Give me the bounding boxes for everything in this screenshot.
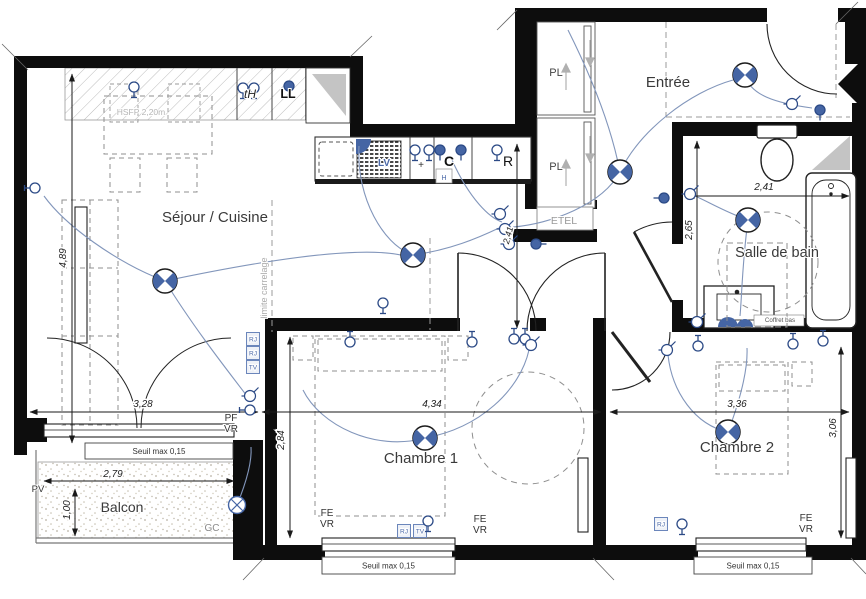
annotation-vr: VR xyxy=(320,519,334,530)
socket-square-text: RJ xyxy=(249,350,257,357)
annotation-lv: LV xyxy=(378,158,390,169)
annotation-fe: FE xyxy=(800,513,813,524)
dimension-label-5: 3,06 xyxy=(828,418,839,438)
annotation-ll: LL xyxy=(280,87,296,101)
outlet-icon xyxy=(345,332,355,348)
nightstand xyxy=(448,336,468,360)
outlet-icon xyxy=(378,298,388,314)
threshold-text: Seuil max 0,15 xyxy=(727,562,780,571)
floor-plan: Seuil max 0,15Seuil max 0,15Seuil max 0,… xyxy=(0,0,866,599)
ceiling-light-icon xyxy=(608,160,632,184)
nightstand xyxy=(293,336,313,360)
annotation-pl: PL xyxy=(549,67,562,79)
annotation-fe: FE xyxy=(321,508,334,519)
outlet-icon xyxy=(693,336,703,352)
duct-bedroom1 xyxy=(578,458,588,532)
switch-icon xyxy=(242,388,259,402)
dimension-label-3: 3,36 xyxy=(727,399,747,410)
room-label-salle-de-bain: Salle de bain xyxy=(735,245,819,261)
ceiling-light-icon xyxy=(733,63,757,87)
outlet-icon xyxy=(240,405,256,415)
socket-square-text: TV xyxy=(416,528,425,535)
bedroom2-door-arc xyxy=(612,332,670,390)
turning-circle-bedroom1 xyxy=(472,372,584,484)
socket-square-text: RJ xyxy=(249,336,257,343)
room-label-entree: Entrée xyxy=(646,74,690,91)
floor-plan-svg: Seuil max 0,15Seuil max 0,15Seuil max 0,… xyxy=(0,0,866,599)
ceiling-light-icon xyxy=(401,243,425,267)
french-door-arc xyxy=(47,338,137,428)
annotation-etel: ETEL xyxy=(551,215,577,227)
wall-socket-square-rj: RJ xyxy=(398,525,411,538)
wall-socket-square-rj: RJ xyxy=(247,347,260,360)
left-wall-window xyxy=(75,207,87,343)
annotation-hsfp-2-20m: HSFP 2,20m xyxy=(117,107,166,117)
bedroom1-door-arc xyxy=(458,253,536,331)
bath-door-arc xyxy=(634,222,672,232)
wall-socket-square-rj: RJ xyxy=(655,518,668,531)
switch-icon xyxy=(659,342,676,356)
dimension-label-8: 2,41 xyxy=(753,182,773,193)
ceiling-light-icon xyxy=(736,208,760,232)
outlet-filled-icon xyxy=(815,105,825,121)
ceiling-light-icon xyxy=(153,269,177,293)
threshold-text: Seuil max 0,15 xyxy=(362,562,415,571)
threshold-box: Seuil max 0,15 xyxy=(694,557,812,574)
ceiling-light-icon xyxy=(413,426,437,450)
threshold-box: Seuil max 0,15 xyxy=(85,443,233,459)
annotation-r: R xyxy=(503,153,513,169)
annotation--: + xyxy=(418,160,424,171)
threshold-text: Seuil max 0,15 xyxy=(133,447,186,456)
annotation-limite-carrelage: limite carrelage xyxy=(259,257,269,318)
outlet-icon xyxy=(509,329,519,345)
room-label-chambre-1: Chambre 1 xyxy=(384,450,458,467)
outlet-filled-icon xyxy=(654,193,670,203)
outlet-icon xyxy=(677,519,687,535)
towel-radiator-bath xyxy=(812,136,850,170)
wall-light-icon xyxy=(229,497,246,514)
chair xyxy=(167,158,197,192)
dimension-label-1: 3,28 xyxy=(133,399,153,410)
annotation-vr: VR xyxy=(799,524,813,535)
outlet-icon xyxy=(818,331,828,347)
outlet-icon xyxy=(467,332,477,348)
annotation-th: tH xyxy=(244,87,256,101)
annotation-vr: VR xyxy=(224,424,238,435)
nightstand xyxy=(792,362,812,386)
entry-door-arc xyxy=(767,24,837,94)
bedroom1-window xyxy=(322,538,455,551)
wall-socket-square-rj: RJ xyxy=(247,333,260,346)
chair xyxy=(110,158,140,192)
annotation-pv: PV xyxy=(32,484,45,495)
wall-socket-square-tv: TV xyxy=(414,525,427,538)
annotation-fe: FE xyxy=(474,514,487,525)
bedroom2-window xyxy=(696,538,806,551)
dimension-label-4: 2,84 xyxy=(276,430,287,451)
annotation-pl: PL xyxy=(549,161,562,173)
duct-bedroom2 xyxy=(846,458,856,538)
annotation-vr: VR xyxy=(473,525,487,536)
annotation-h: H xyxy=(441,175,446,182)
outlet-icon xyxy=(788,334,798,350)
room-label-balcon: Balcon xyxy=(101,499,144,515)
dimension-label-6: 2,79 xyxy=(102,469,123,480)
socket-square-text: TV xyxy=(249,364,258,371)
switch-icon xyxy=(682,186,699,200)
annotation-c: C xyxy=(444,153,454,169)
dimension-label-9: 2,65 xyxy=(684,220,695,241)
toilet-bowl xyxy=(761,139,793,181)
socket-square-text: RJ xyxy=(657,521,665,528)
dimension-label-2: 4,34 xyxy=(422,399,442,410)
toilet-tank xyxy=(757,125,797,138)
annotation-gc: GC xyxy=(205,523,220,534)
dimension-label-7: 1,00 xyxy=(62,500,73,520)
threshold-box: Seuil max 0,15 xyxy=(322,557,455,574)
french-door-arc xyxy=(141,338,231,428)
dimension-label-0: 4,89 xyxy=(58,248,69,268)
room-label-chambre-2: Chambre 2 xyxy=(700,439,774,456)
switch-icon xyxy=(784,96,801,110)
annotation-pf: PF xyxy=(225,413,238,424)
bed-2 xyxy=(716,362,788,474)
socket-square-text: RJ xyxy=(400,528,408,535)
wall-socket-square-tv: TV xyxy=(247,361,260,374)
annotation-coffret-bas: Coffret bas xyxy=(765,317,795,324)
room-label-sejour-cuisine: Séjour / Cuisine xyxy=(162,209,268,226)
